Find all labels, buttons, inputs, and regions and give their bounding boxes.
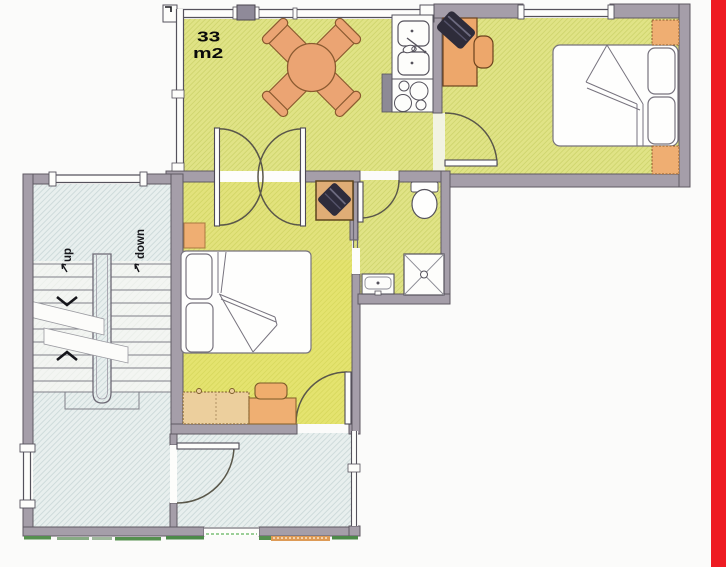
svg-text:up: up [62, 248, 74, 262]
svg-text:down: down [135, 229, 147, 259]
svg-text:m2: m2 [193, 44, 223, 61]
svg-text:33: 33 [197, 28, 220, 45]
